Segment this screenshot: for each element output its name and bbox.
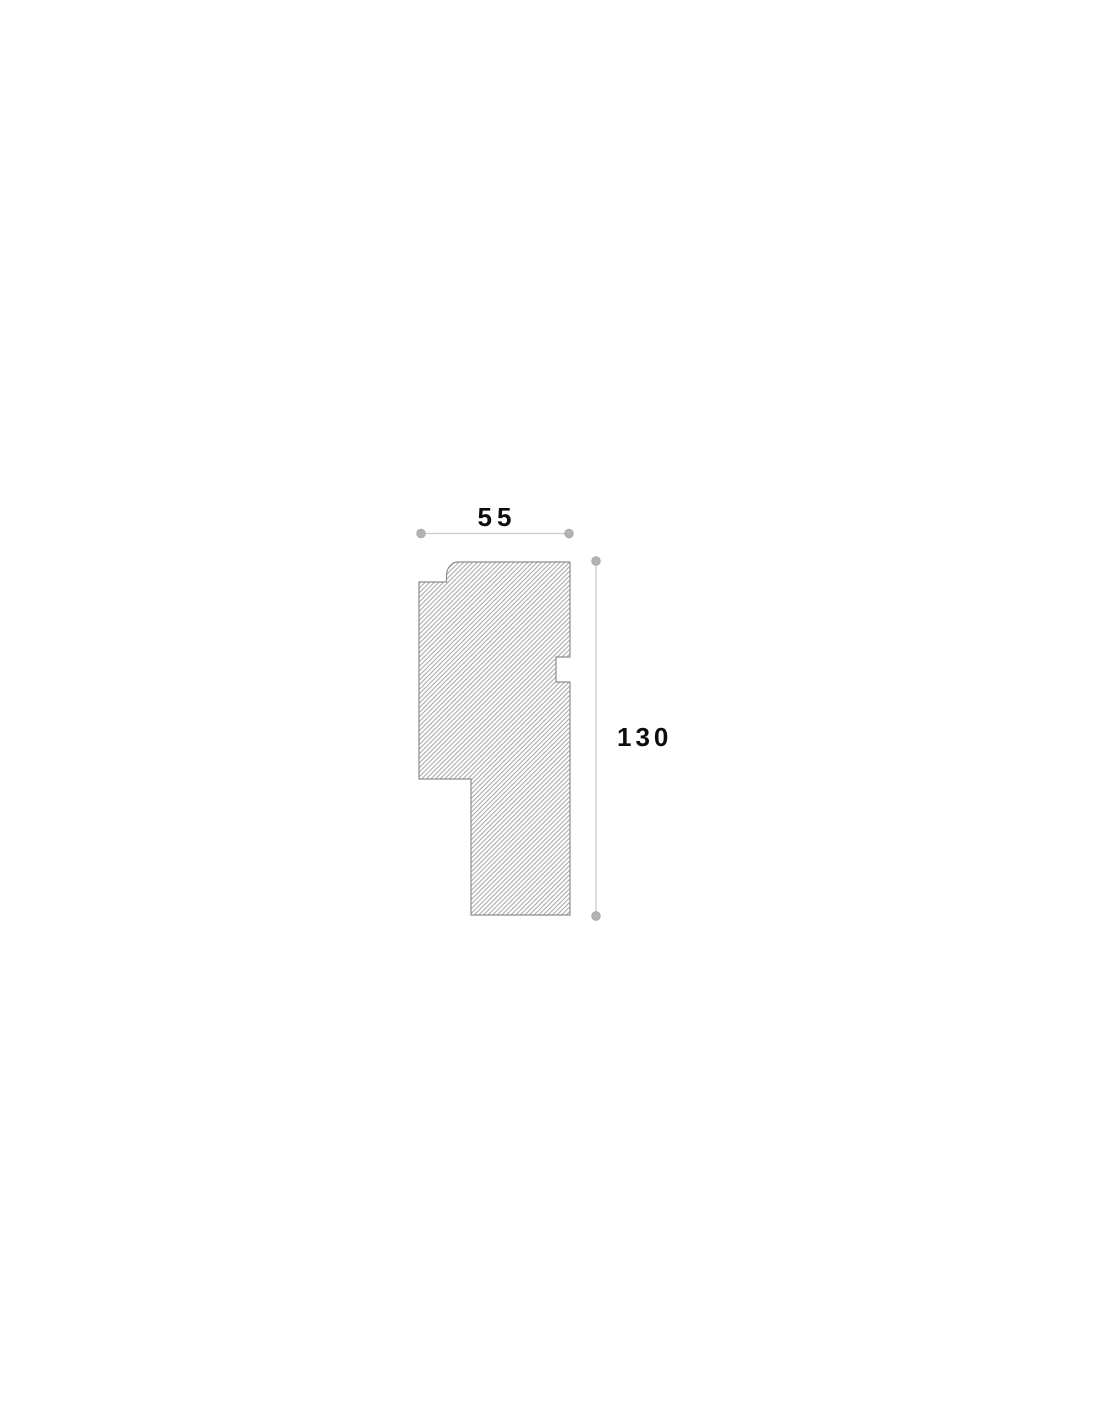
profile-drawing xyxy=(0,0,1100,1422)
height-dimension-label: 130 xyxy=(617,724,672,750)
dimension-dot xyxy=(592,912,601,921)
dimension-dot xyxy=(592,557,601,566)
width-dimension-label: 55 xyxy=(478,504,517,530)
diagram-canvas: 55 130 xyxy=(0,0,1100,1422)
profile-shape xyxy=(419,562,570,915)
dimension-dot xyxy=(565,529,574,538)
dimension-dot xyxy=(417,529,426,538)
